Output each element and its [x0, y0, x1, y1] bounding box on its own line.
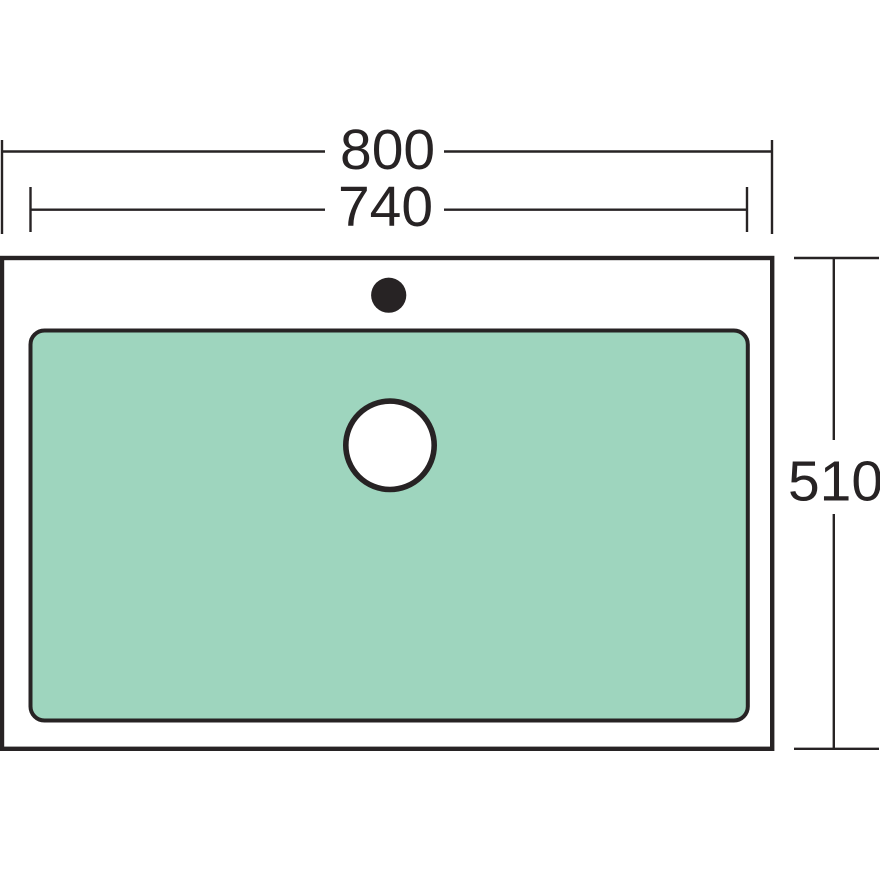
svg-text:740: 740	[338, 175, 433, 239]
svg-text:800: 800	[340, 118, 435, 182]
svg-text:510: 510	[788, 450, 880, 514]
